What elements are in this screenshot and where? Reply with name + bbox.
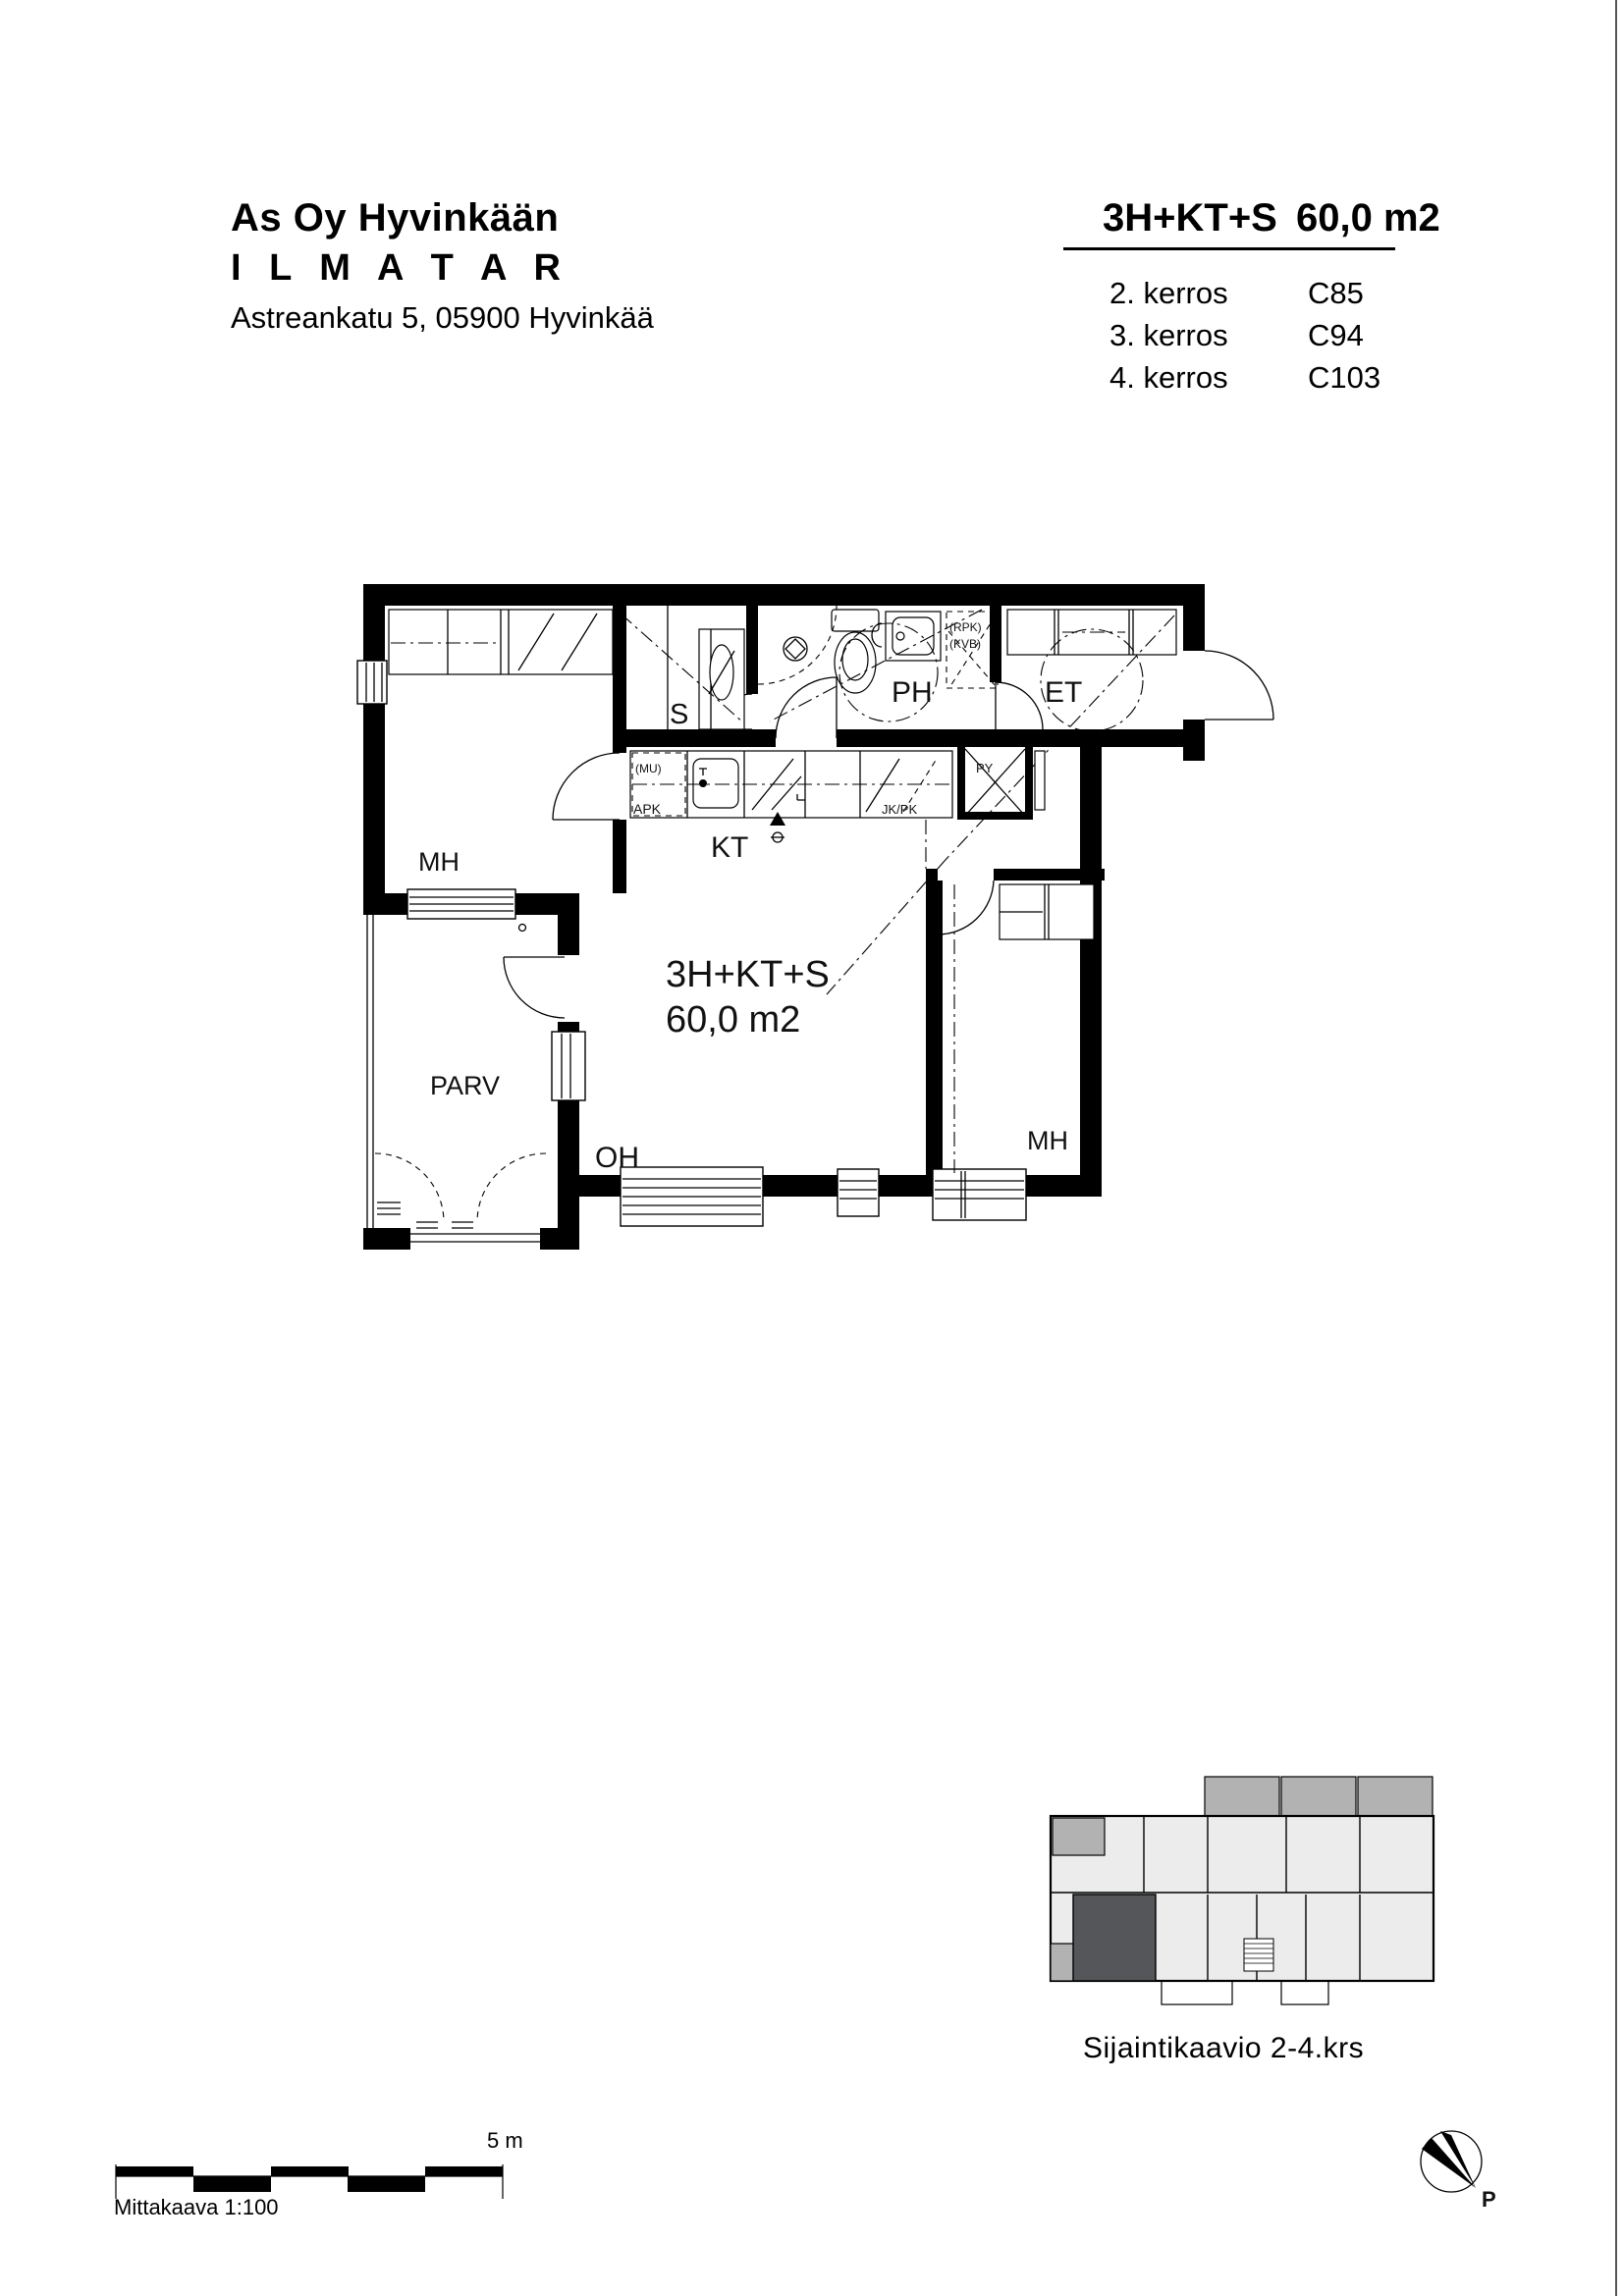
site-diagram-caption: Sijaintikaavio 2-4.krs xyxy=(1083,2032,1364,2065)
label-kitchen: KT xyxy=(711,831,748,864)
label-kvb: (KVB) xyxy=(949,637,981,651)
north-arrow-spike1 xyxy=(1422,2138,1476,2188)
toilet-icon xyxy=(832,610,879,693)
floor-row: 3. kerros C94 xyxy=(1109,318,1404,360)
company-name-line1: As Oy Hyvinkään xyxy=(231,196,559,240)
scale-caption: Mittakaava 1:100 xyxy=(114,2195,279,2220)
label-sauna: S xyxy=(670,699,688,730)
label-balcony: PARV xyxy=(430,1071,500,1100)
unit-code: C94 xyxy=(1308,318,1364,353)
wardrobe-entrance xyxy=(1007,610,1176,655)
floor-name: 3. kerros xyxy=(1109,318,1228,353)
north-label: P xyxy=(1482,2187,1496,2212)
label-py: PY xyxy=(976,761,994,775)
site-entrance-canopies xyxy=(1162,1981,1328,2004)
kitchen-counter xyxy=(630,751,952,842)
floor-name: 4. kerros xyxy=(1109,360,1228,396)
shower-corner xyxy=(758,606,837,684)
floor-list: 2. kerros C85 3. kerros C94 4. kerros C1… xyxy=(1109,276,1404,402)
label-mu: (MU) xyxy=(635,762,662,775)
floor-name: 2. kerros xyxy=(1109,276,1228,311)
door-balcony xyxy=(504,957,565,1018)
door-entry xyxy=(1205,651,1273,720)
label-entrance: ET xyxy=(1045,676,1082,709)
company-address: Astreankatu 5, 05900 Hyvinkää xyxy=(231,300,654,336)
scale-length-label: 5 m xyxy=(487,2128,523,2154)
apartment-type: 3H+KT+S xyxy=(1103,196,1277,240)
detail-dot xyxy=(519,925,526,932)
wardrobe-bedroom1 xyxy=(389,610,613,674)
site-diagram xyxy=(1043,1767,1435,2012)
floor-row: 2. kerros C85 xyxy=(1109,276,1404,318)
label-jkpk: JK/PK xyxy=(882,802,917,817)
plan-type-label: 3H+KT+S xyxy=(666,954,830,995)
balcony-partition-arcs xyxy=(375,1153,546,1222)
company-name-line2: I L M A T A R xyxy=(231,247,569,290)
window-balcony-living xyxy=(552,1032,585,1100)
unit-code: C85 xyxy=(1308,276,1364,311)
label-apk: APK xyxy=(633,801,662,817)
door-bathroom xyxy=(776,677,837,738)
label-bedroom1: MH xyxy=(418,847,460,877)
floor-plan-drawing: MH S PH ET KT OH MH PARV 3H+KT+S 60,0 m2… xyxy=(353,574,1286,1261)
window-living-room xyxy=(621,1167,763,1226)
page-edge-line xyxy=(1615,0,1617,2296)
apartment-area: 60,0 m2 xyxy=(1296,196,1440,240)
site-highlighted-unit xyxy=(1073,1895,1156,1981)
plan-area-label: 60,0 m2 xyxy=(666,999,800,1041)
window-small xyxy=(838,1169,879,1216)
label-bathroom: PH xyxy=(892,676,933,709)
floor-plan-page: As Oy Hyvinkään I L M A T A R Astreankat… xyxy=(0,0,1623,2296)
site-balcony-left xyxy=(1053,1818,1105,1855)
window-bedroom1-left xyxy=(357,661,387,704)
site-stairwell xyxy=(1244,1939,1273,1971)
site-balconies-top xyxy=(1205,1777,1433,1816)
unit-code: C103 xyxy=(1308,360,1380,396)
door-bedroom1 xyxy=(553,753,620,820)
window-bedroom2 xyxy=(933,1169,1026,1220)
window-bedroom1-balcony xyxy=(407,889,515,919)
door-bedroom2 xyxy=(938,881,994,934)
washbasin-icon xyxy=(872,612,941,661)
wardrobe-bedroom2 xyxy=(1000,884,1094,939)
floor-row: 4. kerros C103 xyxy=(1109,360,1404,402)
label-bedroom2: MH xyxy=(1027,1126,1068,1155)
label-living-room: OH xyxy=(595,1142,639,1174)
door-hall-entrance xyxy=(996,682,1043,729)
header-rule xyxy=(1063,247,1395,250)
label-rpk: (RPK) xyxy=(949,620,982,634)
north-arrow: P xyxy=(1419,2128,1527,2236)
